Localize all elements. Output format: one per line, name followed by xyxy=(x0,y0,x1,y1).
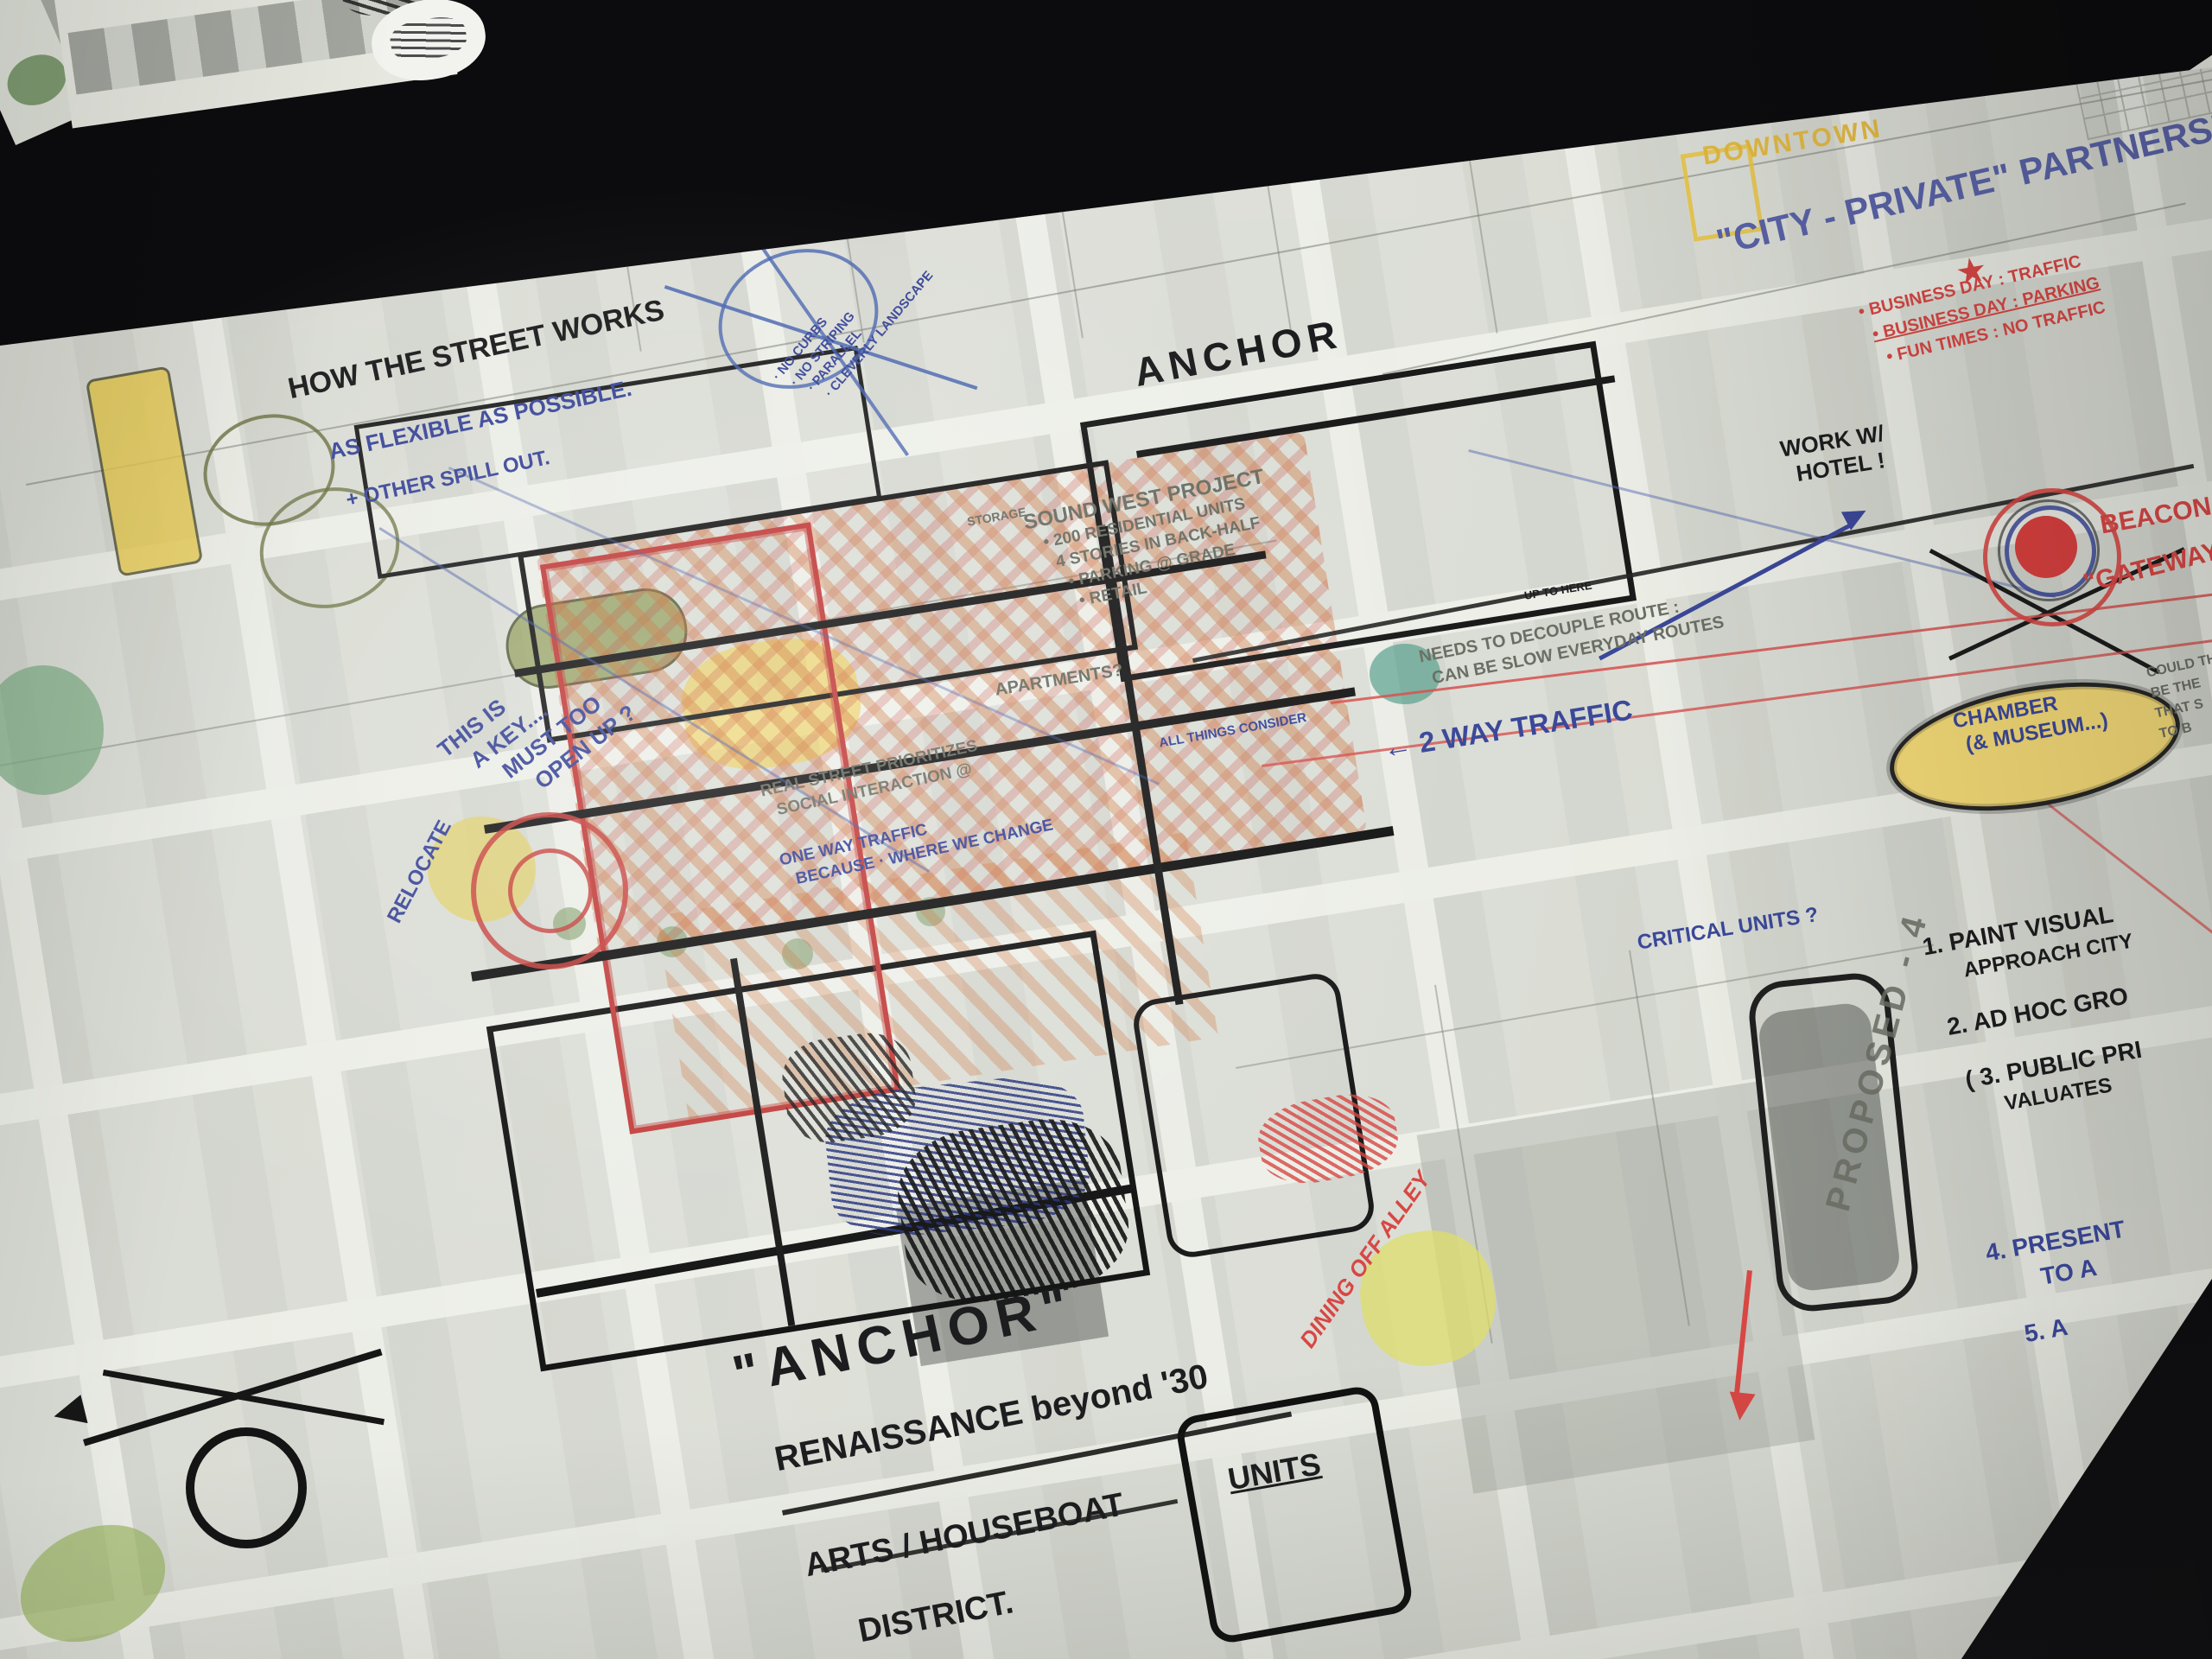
action-item: 2. AD HOC GRO xyxy=(1945,977,2145,1044)
red-arrowhead-icon xyxy=(1726,1392,1755,1422)
trace-paper-sheet: HOW THE STREET WORKS AS FLEXIBLE AS POSS… xyxy=(0,0,2212,1659)
red-spiral-mark-inner xyxy=(508,849,593,933)
beacon-dot-icon xyxy=(2015,516,2077,578)
pen-scribble xyxy=(388,13,469,64)
action-list-blue: 4. PRESENT TO A 5. A xyxy=(1983,1213,2143,1355)
black-circle-mark xyxy=(186,1427,307,1548)
uses-change-line: SOME USES WILL xyxy=(1289,92,1493,160)
photo-of-sketch: HOW THE STREET WORKS AS FLEXIBLE AS POSS… xyxy=(0,0,2212,1659)
action-list-black: 1. PAINT VISUAL APPROACH CITY 2. AD HOC … xyxy=(1920,895,2159,1127)
black-tick xyxy=(1318,81,1332,163)
units-box-frame xyxy=(1174,1384,1415,1646)
